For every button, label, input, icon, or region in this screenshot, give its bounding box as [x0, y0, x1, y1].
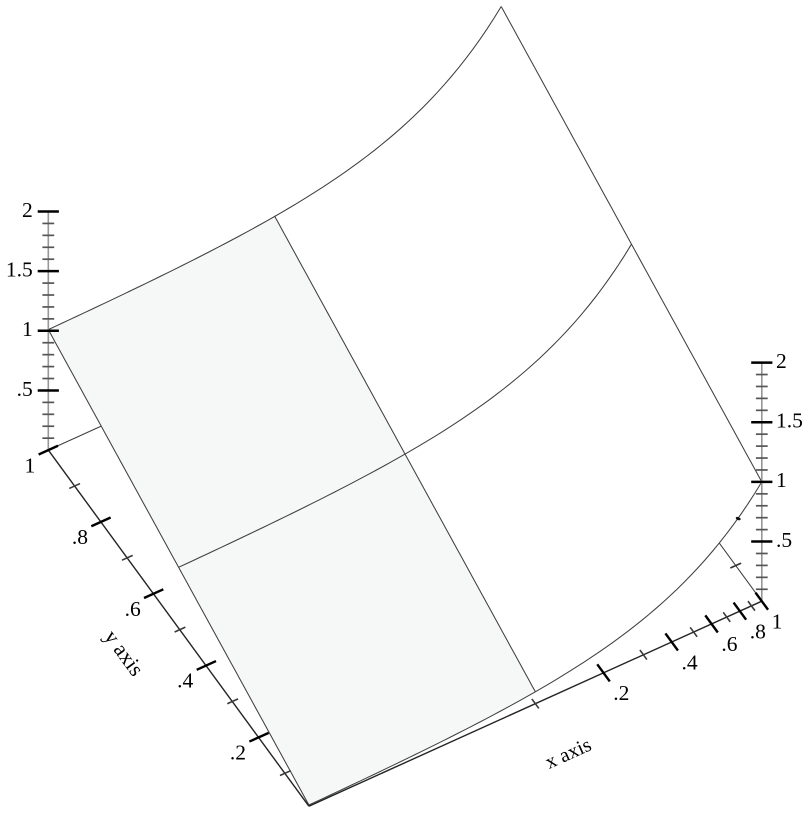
svg-text:.6: .6 [721, 632, 737, 656]
svg-text:1.5: 1.5 [776, 409, 803, 433]
svg-text:.5: .5 [17, 377, 33, 401]
svg-text:.5: .5 [776, 528, 792, 552]
svg-text:1: 1 [772, 610, 783, 634]
svg-text:.8: .8 [750, 619, 766, 643]
svg-text:1: 1 [25, 453, 36, 477]
svg-text:.4: .4 [682, 650, 698, 674]
svg-text:2: 2 [776, 349, 787, 373]
svg-text:2: 2 [22, 198, 33, 222]
svg-text:.8: .8 [72, 525, 88, 549]
svg-text:1.5: 1.5 [6, 258, 33, 282]
svg-text:.6: .6 [125, 597, 141, 621]
svg-text:1: 1 [22, 317, 33, 341]
svg-text:.2: .2 [613, 681, 629, 705]
svg-text:.4: .4 [177, 669, 193, 693]
svg-text:.2: .2 [230, 741, 246, 765]
svg-text:1: 1 [776, 468, 787, 492]
